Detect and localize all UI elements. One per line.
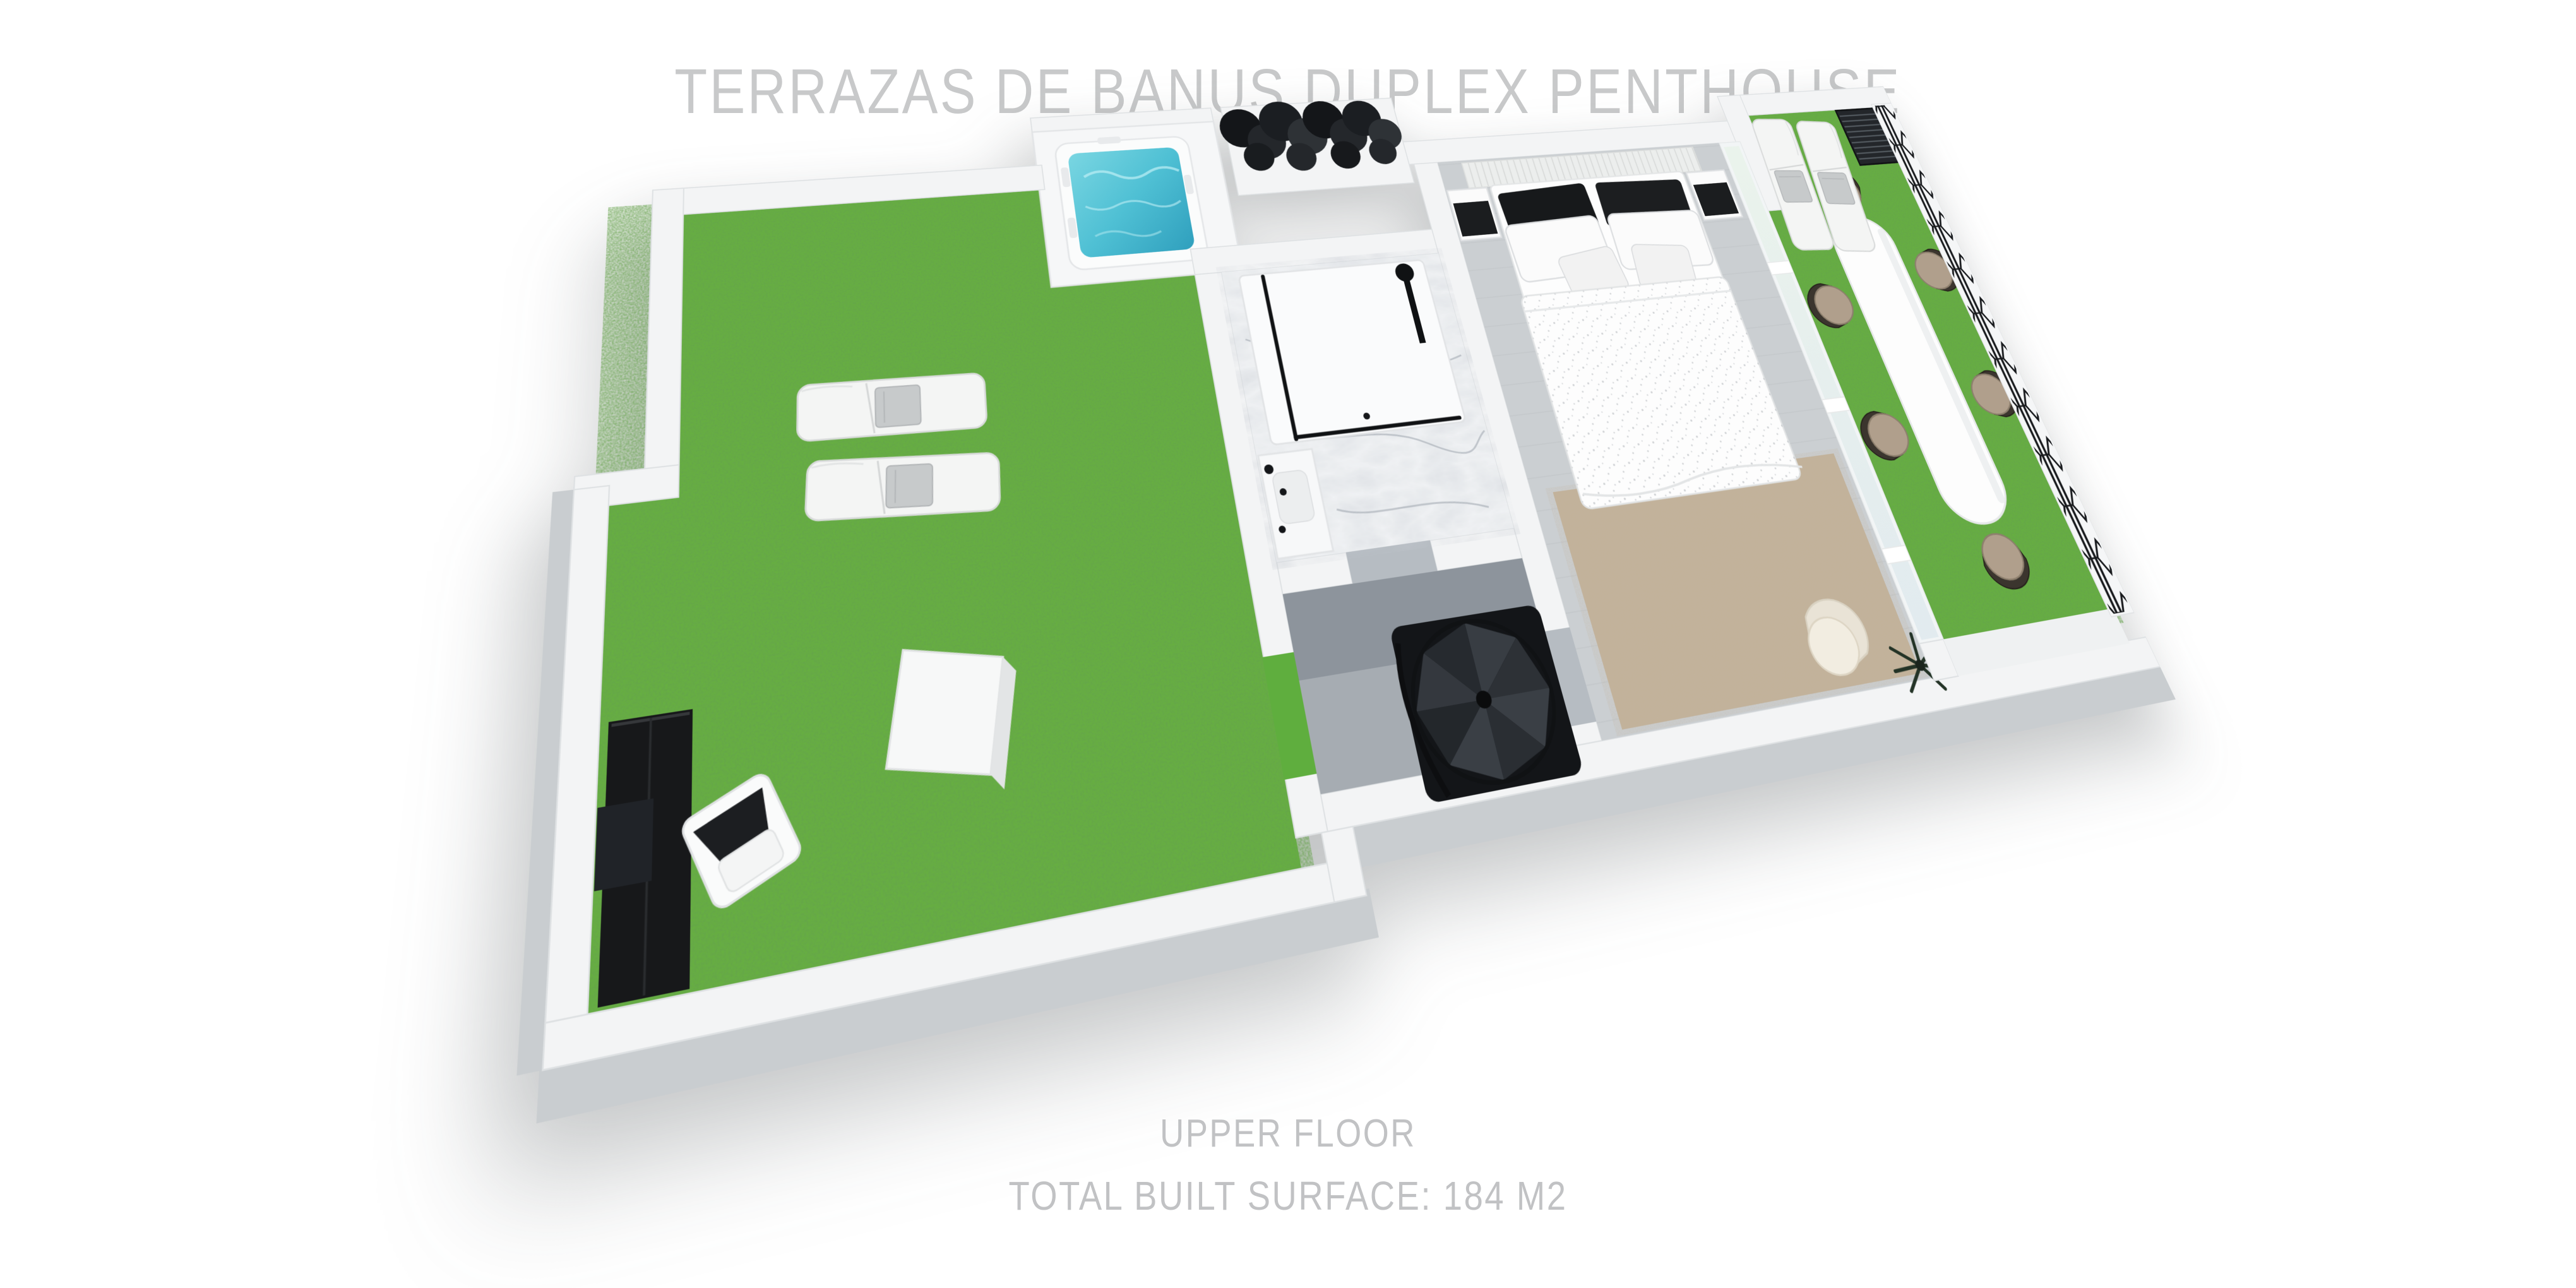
storage-box	[884, 650, 1017, 789]
floor-label: UPPER FLOOR	[193, 1111, 2383, 1156]
floorplan-svg	[483, 63, 2220, 1191]
mullion	[1767, 261, 1794, 275]
footer: UPPER FLOOR TOTAL BUILT SURFACE: 184 M2	[193, 1111, 2383, 1219]
west-terrace-grass	[587, 181, 1301, 1015]
page: TERRAZAS DE BANUS DUPLEX PENTHOUSE	[0, 0, 2576, 1288]
west-wall-upper	[644, 188, 684, 488]
cube-side-table	[594, 799, 653, 891]
planter-hedge	[1215, 95, 1415, 196]
surface-label: TOTAL BUILT SURFACE: 184 M2	[193, 1172, 2383, 1219]
jacuzzi	[1054, 133, 1210, 271]
floorplan-3d	[483, 63, 2220, 1191]
sun-lounger	[805, 453, 1000, 521]
mullion	[1822, 397, 1850, 414]
